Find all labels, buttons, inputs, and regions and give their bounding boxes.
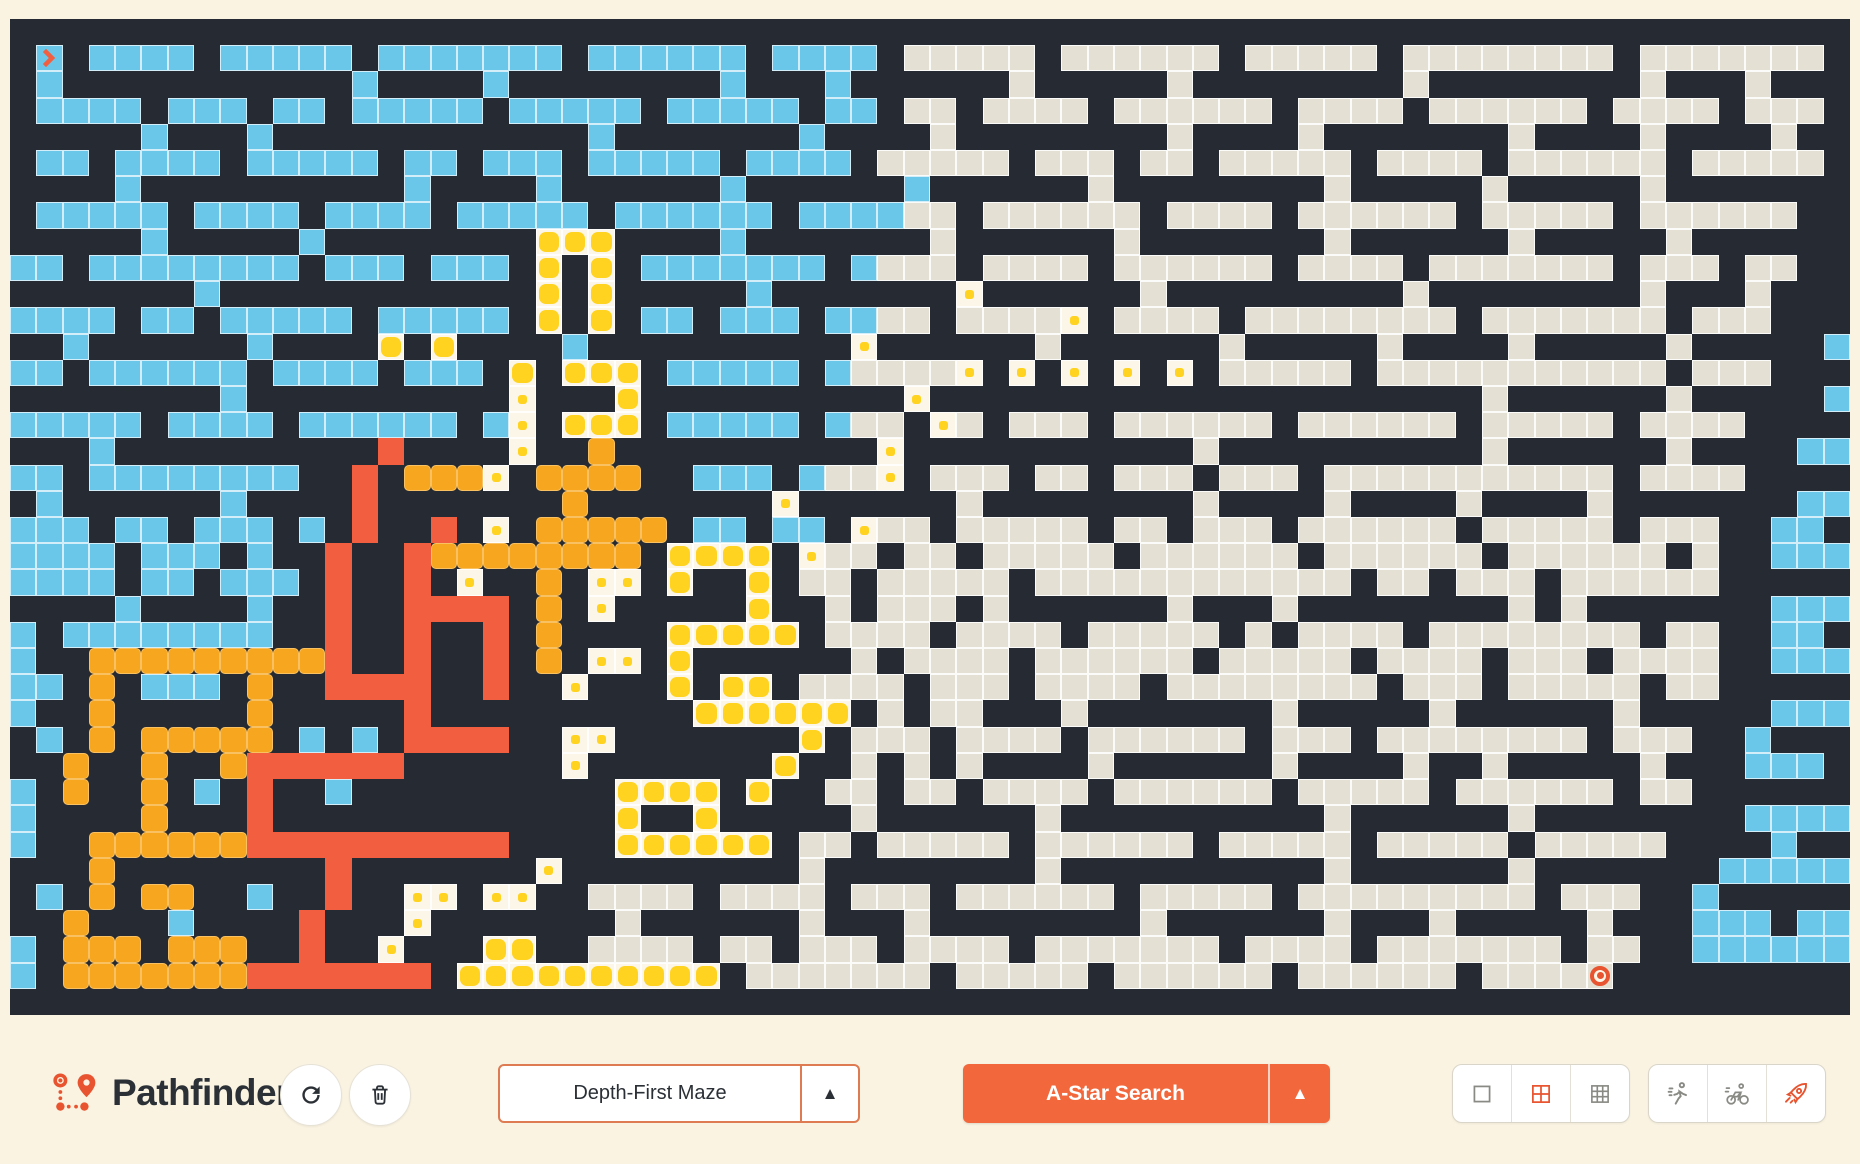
maze-cell-unvisited[interactable] <box>1324 779 1350 805</box>
maze-cell-visited[interactable] <box>89 543 115 569</box>
maze-cell-visited[interactable] <box>299 727 325 753</box>
maze-cell-visited[interactable] <box>1692 884 1718 910</box>
maze-cell-frontier-big[interactable] <box>667 674 693 700</box>
maze-cell-unvisited[interactable] <box>1561 255 1587 281</box>
maze-cell-unvisited[interactable] <box>1324 150 1350 176</box>
maze-cell-frontier-big[interactable] <box>562 229 588 255</box>
maze-cell-candidate[interactable] <box>115 936 141 962</box>
maze-cell-unvisited[interactable] <box>746 936 772 962</box>
maze-cell-unvisited[interactable] <box>1219 648 1245 674</box>
maze-cell-unvisited[interactable] <box>1587 884 1613 910</box>
maze-cell-unvisited[interactable] <box>1377 334 1403 360</box>
maze-cell-unvisited[interactable] <box>1351 674 1377 700</box>
maze-cell-unvisited[interactable] <box>1272 360 1298 386</box>
maze-cell-unvisited[interactable] <box>956 700 982 726</box>
maze-cell-unvisited[interactable] <box>1640 202 1666 228</box>
maze-cell-visited[interactable] <box>194 674 220 700</box>
maze-cell-candidate[interactable] <box>509 543 535 569</box>
maze-cell-unvisited[interactable] <box>956 517 982 543</box>
maze-cell-visited[interactable] <box>325 412 351 438</box>
maze-cell-visited[interactable] <box>63 517 89 543</box>
maze-cell-unvisited[interactable] <box>1324 648 1350 674</box>
maze-cell-unvisited[interactable] <box>1561 832 1587 858</box>
maze-cell-unvisited[interactable] <box>877 963 903 989</box>
maze-cell-unvisited[interactable] <box>1587 674 1613 700</box>
maze-cell-unvisited[interactable] <box>1035 622 1061 648</box>
maze-cell-candidate[interactable] <box>194 727 220 753</box>
maze-cell-unvisited[interactable] <box>1298 98 1324 124</box>
maze-cell-frontier-dot[interactable] <box>483 884 509 910</box>
maze-cell-visited[interactable] <box>115 150 141 176</box>
maze-cell-unvisited[interactable] <box>1245 307 1271 333</box>
maze-cell-frontier-big[interactable] <box>746 543 772 569</box>
maze-cell-visited[interactable] <box>1824 334 1850 360</box>
maze-cell-visited[interactable] <box>247 465 273 491</box>
maze-cell-unvisited[interactable] <box>1061 569 1087 595</box>
maze-cell-unvisited[interactable] <box>956 45 982 71</box>
maze-cell-unvisited[interactable] <box>1535 779 1561 805</box>
maze-cell-candidate[interactable] <box>220 753 246 779</box>
maze-cell-visited[interactable] <box>194 202 220 228</box>
maze-cell-frontier-dot[interactable] <box>378 936 404 962</box>
maze-cell-unvisited[interactable] <box>1351 884 1377 910</box>
maze-cell-unvisited[interactable] <box>1193 884 1219 910</box>
maze-cell-visited[interactable] <box>799 465 825 491</box>
maze-cell-unvisited[interactable] <box>1797 98 1823 124</box>
maze-cell-visited[interactable] <box>194 779 220 805</box>
maze-cell-unvisited[interactable] <box>983 963 1009 989</box>
maze-cell-unvisited[interactable] <box>1193 438 1219 464</box>
maze-cell-visited[interactable] <box>1824 596 1850 622</box>
maze-cell-frontier-dot[interactable] <box>904 386 930 412</box>
maze-cell-candidate[interactable] <box>615 465 641 491</box>
maze-cell-visited[interactable] <box>115 465 141 491</box>
maze-cell-visited[interactable] <box>36 98 62 124</box>
maze-cell-unvisited[interactable] <box>877 596 903 622</box>
maze-cell-frontier-big[interactable] <box>615 386 641 412</box>
maze-cell-candidate[interactable] <box>168 936 194 962</box>
maze-cell-unvisited[interactable] <box>1719 307 1745 333</box>
maze-cell-visited[interactable] <box>720 45 746 71</box>
maze-cell-unvisited[interactable] <box>1456 150 1482 176</box>
maze-cell-unvisited[interactable] <box>1745 45 1771 71</box>
maze-cell-unvisited[interactable] <box>1508 229 1534 255</box>
maze-cell-candidate[interactable] <box>588 517 614 543</box>
maze-cell-visited[interactable] <box>299 98 325 124</box>
maze-cell-unvisited[interactable] <box>1719 360 1745 386</box>
maze-cell-unvisited[interactable] <box>1508 596 1534 622</box>
maze-cell-visited[interactable] <box>115 412 141 438</box>
maze-cell-visited[interactable] <box>89 465 115 491</box>
maze-cell-visited[interactable] <box>10 700 36 726</box>
maze-cell-path[interactable] <box>457 727 483 753</box>
maze-cell-unvisited[interactable] <box>1508 45 1534 71</box>
maze-cell-unvisited[interactable] <box>904 832 930 858</box>
maze-cell-frontier-big[interactable] <box>720 674 746 700</box>
maze-cell-unvisited[interactable] <box>1140 412 1166 438</box>
maze-cell-unvisited[interactable] <box>1298 622 1324 648</box>
maze-cell-unvisited[interactable] <box>825 569 851 595</box>
maze-cell-unvisited[interactable] <box>1219 569 1245 595</box>
maze-cell-visited[interactable] <box>273 307 299 333</box>
maze-cell-unvisited[interactable] <box>1324 412 1350 438</box>
maze-cell-unvisited[interactable] <box>1245 884 1271 910</box>
maze-cell-unvisited[interactable] <box>877 255 903 281</box>
maze-cell-frontier-big[interactable] <box>693 832 719 858</box>
maze-cell-visited[interactable] <box>194 412 220 438</box>
maze-cell-visited[interactable] <box>641 255 667 281</box>
maze-cell-candidate[interactable] <box>588 465 614 491</box>
maze-cell-unvisited[interactable] <box>983 202 1009 228</box>
maze-cell-unvisited[interactable] <box>1692 412 1718 438</box>
maze-cell-visited[interactable] <box>693 45 719 71</box>
maze-cell-visited[interactable] <box>1745 910 1771 936</box>
maze-cell-unvisited[interactable] <box>1456 779 1482 805</box>
maze-cell-visited[interactable] <box>247 543 273 569</box>
maze-cell-visited[interactable] <box>720 307 746 333</box>
maze-cell-visited[interactable] <box>194 255 220 281</box>
maze-cell-path[interactable] <box>299 963 325 989</box>
maze-cell-visited[interactable] <box>325 255 351 281</box>
maze-cell-visited[interactable] <box>36 412 62 438</box>
maze-cell-unvisited[interactable] <box>1403 281 1429 307</box>
maze-cell-unvisited[interactable] <box>1324 98 1350 124</box>
maze-cell-visited[interactable] <box>483 45 509 71</box>
maze-cell-unvisited[interactable] <box>1272 465 1298 491</box>
maze-cell-unvisited[interactable] <box>1272 936 1298 962</box>
maze-cell-visited[interactable] <box>1797 753 1823 779</box>
maze-cell-unvisited[interactable] <box>1114 779 1140 805</box>
maze-cell-unvisited[interactable] <box>1640 543 1666 569</box>
maze-cell-visited[interactable] <box>404 45 430 71</box>
maze-cell-candidate[interactable] <box>115 963 141 989</box>
maze-cell-visited[interactable] <box>483 202 509 228</box>
maze-cell-frontier-big[interactable] <box>615 360 641 386</box>
maze-cell-unvisited[interactable] <box>904 727 930 753</box>
search-dropdown-chevron-up-icon[interactable]: ▲ <box>1268 1064 1330 1123</box>
maze-cell-visited[interactable] <box>693 517 719 543</box>
maze-cell-unvisited[interactable] <box>1035 465 1061 491</box>
maze-cell-visited[interactable] <box>851 98 877 124</box>
maze-cell-unvisited[interactable] <box>1245 622 1271 648</box>
maze-cell-candidate[interactable] <box>89 648 115 674</box>
maze-cell-unvisited[interactable] <box>904 910 930 936</box>
maze-cell-unvisited[interactable] <box>851 465 877 491</box>
maze-cell-visited[interactable] <box>10 412 36 438</box>
maze-cell-unvisited[interactable] <box>1666 202 1692 228</box>
maze-cell-visited[interactable] <box>115 202 141 228</box>
maze-cell-unvisited[interactable] <box>1272 753 1298 779</box>
maze-cell-visited[interactable] <box>746 360 772 386</box>
maze-cell-unvisited[interactable] <box>1193 307 1219 333</box>
maze-cell-unvisited[interactable] <box>1298 832 1324 858</box>
maze-cell-candidate[interactable] <box>141 884 167 910</box>
maze-cell-unvisited[interactable] <box>1009 727 1035 753</box>
maze-cell-unvisited[interactable] <box>1403 674 1429 700</box>
maze-cell-unvisited[interactable] <box>1035 334 1061 360</box>
maze-cell-unvisited[interactable] <box>1508 98 1534 124</box>
maze-cell-candidate[interactable] <box>536 648 562 674</box>
maze-cell-visited[interactable] <box>247 596 273 622</box>
maze-cell-path[interactable] <box>352 674 378 700</box>
maze-cell-candidate[interactable] <box>562 543 588 569</box>
maze-cell-unvisited[interactable] <box>1035 832 1061 858</box>
maze-cell-unvisited[interactable] <box>877 150 903 176</box>
maze-cell-unvisited[interactable] <box>1745 202 1771 228</box>
maze-cell-unvisited[interactable] <box>1429 412 1455 438</box>
maze-cell-path[interactable] <box>325 543 351 569</box>
maze-cell-unvisited[interactable] <box>1535 255 1561 281</box>
maze-cell-unvisited[interactable] <box>1771 98 1797 124</box>
maze-cell-unvisited[interactable] <box>1719 465 1745 491</box>
maze-cell-unvisited[interactable] <box>1587 45 1613 71</box>
maze-cell-visited[interactable] <box>562 202 588 228</box>
maze-cell-unvisited[interactable] <box>1745 98 1771 124</box>
maze-cell-visited[interactable] <box>299 517 325 543</box>
maze-cell-visited[interactable] <box>63 569 89 595</box>
maze-cell-frontier-dot[interactable] <box>509 386 535 412</box>
maze-cell-unvisited[interactable] <box>1324 674 1350 700</box>
maze-cell-visited[interactable] <box>220 412 246 438</box>
maze-cell-visited[interactable] <box>693 465 719 491</box>
maze-cell-unvisited[interactable] <box>1482 753 1508 779</box>
maze-cell-frontier-dot[interactable] <box>483 517 509 543</box>
maze-cell-unvisited[interactable] <box>983 307 1009 333</box>
maze-cell-unvisited[interactable] <box>1587 360 1613 386</box>
maze-cell-unvisited[interactable] <box>1193 543 1219 569</box>
maze-cell-frontier-big[interactable] <box>693 963 719 989</box>
maze-cell-unvisited[interactable] <box>1587 202 1613 228</box>
maze-cell-unvisited[interactable] <box>1193 202 1219 228</box>
maze-cell-unvisited[interactable] <box>1613 622 1639 648</box>
maze-cell-candidate[interactable] <box>89 858 115 884</box>
maze-cell-unvisited[interactable] <box>1114 202 1140 228</box>
maze-cell-unvisited[interactable] <box>1429 674 1455 700</box>
maze-cell-unvisited[interactable] <box>1324 569 1350 595</box>
maze-cell-visited[interactable] <box>1771 858 1797 884</box>
maze-cell-visited[interactable] <box>299 307 325 333</box>
maze-cell-visited[interactable] <box>115 517 141 543</box>
maze-cell-unvisited[interactable] <box>825 779 851 805</box>
maze-cell-frontier-big[interactable] <box>693 622 719 648</box>
maze-cell-unvisited[interactable] <box>1640 412 1666 438</box>
maze-cell-unvisited[interactable] <box>1324 936 1350 962</box>
maze-cell-visited[interactable] <box>404 307 430 333</box>
maze-cell-unvisited[interactable] <box>956 622 982 648</box>
maze-cell-frontier-dot[interactable] <box>877 465 903 491</box>
maze-cell-unvisited[interactable] <box>1114 229 1140 255</box>
maze-cell-unvisited[interactable] <box>1298 255 1324 281</box>
maze-cell-visited[interactable] <box>220 360 246 386</box>
maze-cell-visited[interactable] <box>1824 386 1850 412</box>
maze-cell-unvisited[interactable] <box>1298 648 1324 674</box>
maze-cell-unvisited[interactable] <box>1114 45 1140 71</box>
maze-cell-visited[interactable] <box>483 307 509 333</box>
maze-cell-visited[interactable] <box>141 465 167 491</box>
maze-cell-candidate[interactable] <box>562 465 588 491</box>
maze-cell-visited[interactable] <box>746 465 772 491</box>
maze-cell-goal[interactable] <box>1587 963 1613 989</box>
maze-cell-unvisited[interactable] <box>825 832 851 858</box>
maze-cell-frontier-big[interactable] <box>641 832 667 858</box>
maze-cell-unvisited[interactable] <box>1666 229 1692 255</box>
maze-cell-unvisited[interactable] <box>1377 936 1403 962</box>
maze-cell-visited[interactable] <box>641 202 667 228</box>
maze-cell-unvisited[interactable] <box>1245 543 1271 569</box>
maze-cell-unvisited[interactable] <box>1219 360 1245 386</box>
maze-cell-visited[interactable] <box>220 386 246 412</box>
maze-cell-unvisited[interactable] <box>1587 779 1613 805</box>
maze-cell-visited[interactable] <box>1771 753 1797 779</box>
maze-cell-path[interactable] <box>483 648 509 674</box>
maze-cell-unvisited[interactable] <box>1561 98 1587 124</box>
maze-cell-visited[interactable] <box>799 124 825 150</box>
maze-cell-unvisited[interactable] <box>1666 727 1692 753</box>
maze-cell-visited[interactable] <box>273 45 299 71</box>
maze-cell-candidate[interactable] <box>536 517 562 543</box>
maze-cell-frontier-big[interactable] <box>667 963 693 989</box>
maze-cell-visited[interactable] <box>220 569 246 595</box>
maze-cell-unvisited[interactable] <box>983 648 1009 674</box>
maze-cell-visited[interactable] <box>1745 727 1771 753</box>
maze-cell-path[interactable] <box>431 517 457 543</box>
maze-cell-frontier-big[interactable] <box>746 596 772 622</box>
maze-cell-visited[interactable] <box>168 622 194 648</box>
maze-cell-unvisited[interactable] <box>1035 648 1061 674</box>
maze-cell-unvisited[interactable] <box>1193 255 1219 281</box>
maze-cell-unvisited[interactable] <box>1193 491 1219 517</box>
maze-cell-start[interactable] <box>36 45 62 71</box>
maze-cell-unvisited[interactable] <box>1640 360 1666 386</box>
maze-cell-visited[interactable] <box>562 334 588 360</box>
maze-cell-unvisited[interactable] <box>1193 98 1219 124</box>
maze-cell-unvisited[interactable] <box>1692 202 1718 228</box>
maze-cell-unvisited[interactable] <box>1377 543 1403 569</box>
maze-cell-candidate[interactable] <box>141 963 167 989</box>
maze-cell-visited[interactable] <box>693 98 719 124</box>
maze-cell-unvisited[interactable] <box>1429 307 1455 333</box>
maze-cell-unvisited[interactable] <box>1140 307 1166 333</box>
maze-cell-visited[interactable] <box>247 884 273 910</box>
maze-cell-visited[interactable] <box>825 45 851 71</box>
maze-cell-candidate[interactable] <box>89 884 115 910</box>
maze-cell-visited[interactable] <box>746 307 772 333</box>
maze-cell-frontier-big[interactable] <box>536 307 562 333</box>
maze-cell-visited[interactable] <box>772 45 798 71</box>
maze-cell-visited[interactable] <box>431 412 457 438</box>
maze-cell-unvisited[interactable] <box>1587 465 1613 491</box>
maze-cell-unvisited[interactable] <box>1561 202 1587 228</box>
maze-cell-unvisited[interactable] <box>615 910 641 936</box>
maze-cell-frontier-dot[interactable] <box>404 884 430 910</box>
maze-cell-frontier-dot[interactable] <box>1009 360 1035 386</box>
maze-cell-visited[interactable] <box>273 465 299 491</box>
maze-cell-frontier-big[interactable] <box>746 779 772 805</box>
maze-cell-unvisited[interactable] <box>1167 884 1193 910</box>
maze-cell-unvisited[interactable] <box>1535 150 1561 176</box>
maze-cell-candidate[interactable] <box>615 517 641 543</box>
maze-cell-frontier-big[interactable] <box>693 700 719 726</box>
maze-cell-visited[interactable] <box>247 517 273 543</box>
maze-cell-frontier-big[interactable] <box>615 963 641 989</box>
maze-cell-visited[interactable] <box>10 674 36 700</box>
maze-cell-visited[interactable] <box>1797 491 1823 517</box>
maze-cell-visited[interactable] <box>457 45 483 71</box>
maze-cell-unvisited[interactable] <box>983 517 1009 543</box>
maze-cell-visited[interactable] <box>36 674 62 700</box>
maze-cell-unvisited[interactable] <box>1692 360 1718 386</box>
maze-cell-frontier-big[interactable] <box>746 622 772 648</box>
maze-cell-visited[interactable] <box>588 45 614 71</box>
maze-cell-unvisited[interactable] <box>1561 307 1587 333</box>
maze-cell-path[interactable] <box>352 465 378 491</box>
maze-cell-unvisited[interactable] <box>930 779 956 805</box>
maze-cell-candidate[interactable] <box>89 832 115 858</box>
maze-cell-frontier-big[interactable] <box>746 569 772 595</box>
maze-cell-unvisited[interactable] <box>1535 674 1561 700</box>
maze-cell-unvisited[interactable] <box>1298 124 1324 150</box>
maze-cell-unvisited[interactable] <box>1403 360 1429 386</box>
maze-cell-unvisited[interactable] <box>720 936 746 962</box>
maze-cell-unvisited[interactable] <box>1009 412 1035 438</box>
maze-cell-unvisited[interactable] <box>1640 465 1666 491</box>
maze-cell-unvisited[interactable] <box>1298 45 1324 71</box>
maze-cell-visited[interactable] <box>141 674 167 700</box>
maze-cell-unvisited[interactable] <box>1324 202 1350 228</box>
maze-cell-path[interactable] <box>404 543 430 569</box>
maze-cell-candidate[interactable] <box>168 832 194 858</box>
maze-cell-candidate[interactable] <box>63 936 89 962</box>
maze-cell-unvisited[interactable] <box>1009 884 1035 910</box>
maze-cell-unvisited[interactable] <box>1245 202 1271 228</box>
maze-cell-unvisited[interactable] <box>1088 936 1114 962</box>
maze-cell-frontier-dot[interactable] <box>483 465 509 491</box>
maze-cell-visited[interactable] <box>168 465 194 491</box>
maze-cell-visited[interactable] <box>273 255 299 281</box>
maze-cell-unvisited[interactable] <box>1613 674 1639 700</box>
maze-cell-visited[interactable] <box>720 202 746 228</box>
maze-cell-candidate[interactable] <box>63 779 89 805</box>
maze-cell-candidate[interactable] <box>194 936 220 962</box>
maze-cell-path[interactable] <box>325 569 351 595</box>
maze-cell-visited[interactable] <box>141 622 167 648</box>
maze-cell-unvisited[interactable] <box>825 674 851 700</box>
maze-cell-visited[interactable] <box>220 465 246 491</box>
maze-cell-frontier-dot[interactable] <box>772 491 798 517</box>
maze-cell-unvisited[interactable] <box>1351 412 1377 438</box>
maze-cell-visited[interactable] <box>509 202 535 228</box>
maze-cell-candidate[interactable] <box>115 832 141 858</box>
maze-cell-unvisited[interactable] <box>1640 150 1666 176</box>
maze-cell-visited[interactable] <box>299 150 325 176</box>
maze-cell-candidate[interactable] <box>115 648 141 674</box>
maze-cell-visited[interactable] <box>825 71 851 97</box>
maze-cell-unvisited[interactable] <box>1035 858 1061 884</box>
maze-cell-visited[interactable] <box>720 98 746 124</box>
maze-cell-unvisited[interactable] <box>1613 150 1639 176</box>
maze-cell-unvisited[interactable] <box>1272 648 1298 674</box>
maze-cell-unvisited[interactable] <box>983 622 1009 648</box>
maze-cell-unvisited[interactable] <box>1298 884 1324 910</box>
maze-cell-unvisited[interactable] <box>1351 779 1377 805</box>
maze-cell-unvisited[interactable] <box>825 543 851 569</box>
maze-cell-visited[interactable] <box>89 438 115 464</box>
maze-cell-visited[interactable] <box>772 517 798 543</box>
maze-cell-unvisited[interactable] <box>983 884 1009 910</box>
maze-cell-visited[interactable] <box>168 307 194 333</box>
maze-cell-unvisited[interactable] <box>1771 202 1797 228</box>
rocket-button[interactable] <box>1766 1065 1825 1122</box>
